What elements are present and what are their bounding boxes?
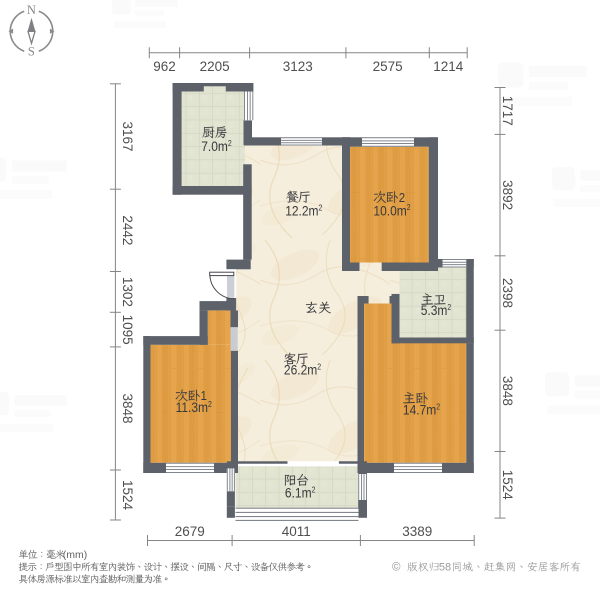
svg-text:5.3m2: 5.3m2 [421, 302, 452, 318]
svg-text:3123: 3123 [283, 59, 313, 74]
svg-text:7.0m2: 7.0m2 [201, 138, 232, 154]
svg-text:1095: 1095 [120, 315, 135, 345]
svg-text:10.0m2: 10.0m2 [373, 203, 410, 219]
svg-text:1214: 1214 [433, 59, 464, 74]
svg-text:1717: 1717 [500, 96, 515, 126]
svg-text:11.3m2: 11.3m2 [176, 399, 212, 415]
svg-text:12.2m2: 12.2m2 [285, 203, 322, 219]
svg-text:3892: 3892 [500, 180, 515, 210]
svg-text:4011: 4011 [282, 524, 311, 539]
svg-text:3848: 3848 [120, 393, 135, 423]
svg-text:2205: 2205 [200, 59, 230, 74]
svg-text:3167: 3167 [120, 121, 135, 151]
svg-text:2575: 2575 [373, 59, 403, 74]
svg-text:2398: 2398 [500, 278, 515, 308]
svg-text:(mm): (mm) [63, 549, 88, 561]
svg-text:N: N [27, 3, 36, 17]
svg-text:1524: 1524 [500, 470, 515, 501]
svg-text:1302: 1302 [120, 277, 135, 307]
svg-text:14.7m2: 14.7m2 [403, 402, 440, 418]
svg-text:©: © [392, 562, 401, 574]
svg-text:3848: 3848 [500, 376, 515, 406]
svg-text:1524: 1524 [120, 480, 135, 511]
svg-text:2442: 2442 [120, 215, 135, 245]
svg-text:S: S [28, 44, 35, 58]
svg-text:26.2m2: 26.2m2 [284, 362, 321, 378]
svg-text:6.1m2: 6.1m2 [285, 485, 316, 501]
svg-text:3389: 3389 [402, 524, 432, 539]
svg-text:58: 58 [439, 562, 451, 574]
svg-text:2679: 2679 [175, 524, 205, 539]
svg-text:962: 962 [153, 59, 176, 74]
